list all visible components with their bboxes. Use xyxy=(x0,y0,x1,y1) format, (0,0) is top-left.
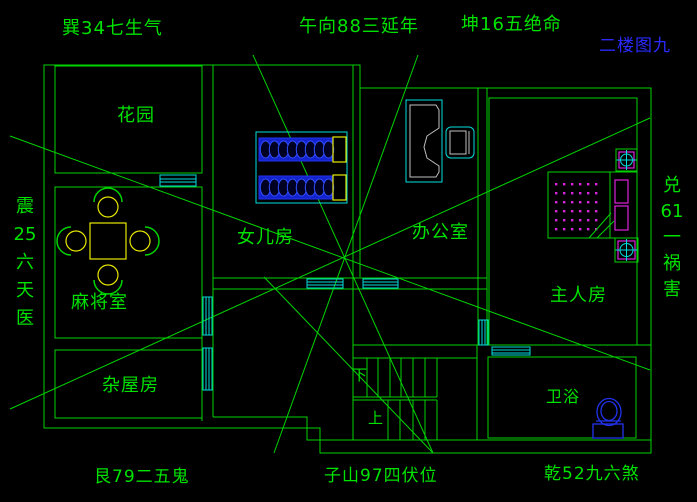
ceiling-lamp-icon-bottom xyxy=(615,238,638,262)
compass-right-char: 祸 xyxy=(663,255,681,273)
pillow-2 xyxy=(333,175,346,200)
pillow-1 xyxy=(333,137,346,162)
room-label-master: 主人房 xyxy=(550,287,607,305)
compass-label-top-center: 午向88三延年 xyxy=(299,18,419,36)
mattress-dots xyxy=(553,178,602,233)
compass-right-char: 一 xyxy=(663,229,681,247)
ceiling-lamp-icon-top xyxy=(616,149,637,171)
compass-label-top-left: 巽34七生气 xyxy=(62,20,163,38)
compass-right-char: 害 xyxy=(663,281,681,299)
chair-left xyxy=(66,231,86,251)
chair-bottom xyxy=(98,265,118,285)
window-corridor-lower xyxy=(203,348,212,390)
room-label-storage: 杂屋房 xyxy=(102,377,159,395)
compass-left-char: 医 xyxy=(16,310,34,328)
room-label-bath: 卫浴 xyxy=(546,389,580,405)
compass-label-top-right: 坤16五绝命 xyxy=(461,16,562,34)
chair-right xyxy=(130,231,150,251)
compass-label-bottom-right: 乾52九六煞 xyxy=(544,466,640,483)
room-label-mahjong: 麻将室 xyxy=(71,294,128,312)
mahjong-table-set xyxy=(57,188,159,294)
compass-right-char: 61 xyxy=(661,203,684,221)
window-hall-right xyxy=(363,279,398,288)
compass-left-char: 天 xyxy=(16,282,34,300)
office-desk xyxy=(406,100,474,182)
floor-title-label: 二楼图九 xyxy=(599,38,671,55)
compass-right-char: 兑 xyxy=(663,177,681,195)
window-hall-left xyxy=(307,279,343,288)
stairs-down-label: 下 xyxy=(352,368,368,383)
compass-left-char: 震 xyxy=(16,198,34,216)
cad-floorplan-canvas: 巽34七生气 午向88三延年 坤16五绝命 二楼图九 艮79二五鬼 子山97四伏… xyxy=(0,0,697,502)
floorplan-drawing xyxy=(0,0,697,502)
room-label-office: 办公室 xyxy=(412,224,469,242)
chair-top xyxy=(98,197,118,217)
compass-left-char: 六 xyxy=(16,254,34,272)
window-garden xyxy=(160,175,196,186)
window-corridor-upper xyxy=(203,297,212,335)
window-bath-top xyxy=(492,347,530,355)
compass-label-bottom-center: 子山97四伏位 xyxy=(324,468,438,485)
compass-label-bottom-left: 艮79二五鬼 xyxy=(94,469,190,486)
compass-label-right-column: 兑 61 一 祸 害 xyxy=(658,177,686,299)
toilet-icon xyxy=(593,399,623,439)
master-pillow-2 xyxy=(615,206,628,230)
room-label-daughter: 女儿房 xyxy=(237,229,294,247)
mahjong-room-outline xyxy=(55,187,202,338)
master-bed xyxy=(548,172,637,238)
mahjong-table xyxy=(90,223,126,259)
room-label-garden: 花园 xyxy=(117,107,155,125)
master-pillow-1 xyxy=(615,180,628,203)
stairs-up-label: 上 xyxy=(368,411,384,426)
twin-beds xyxy=(256,132,347,203)
compass-label-left-column: 震 25 六 天 医 xyxy=(10,198,40,328)
compass-left-char: 25 xyxy=(14,226,37,244)
